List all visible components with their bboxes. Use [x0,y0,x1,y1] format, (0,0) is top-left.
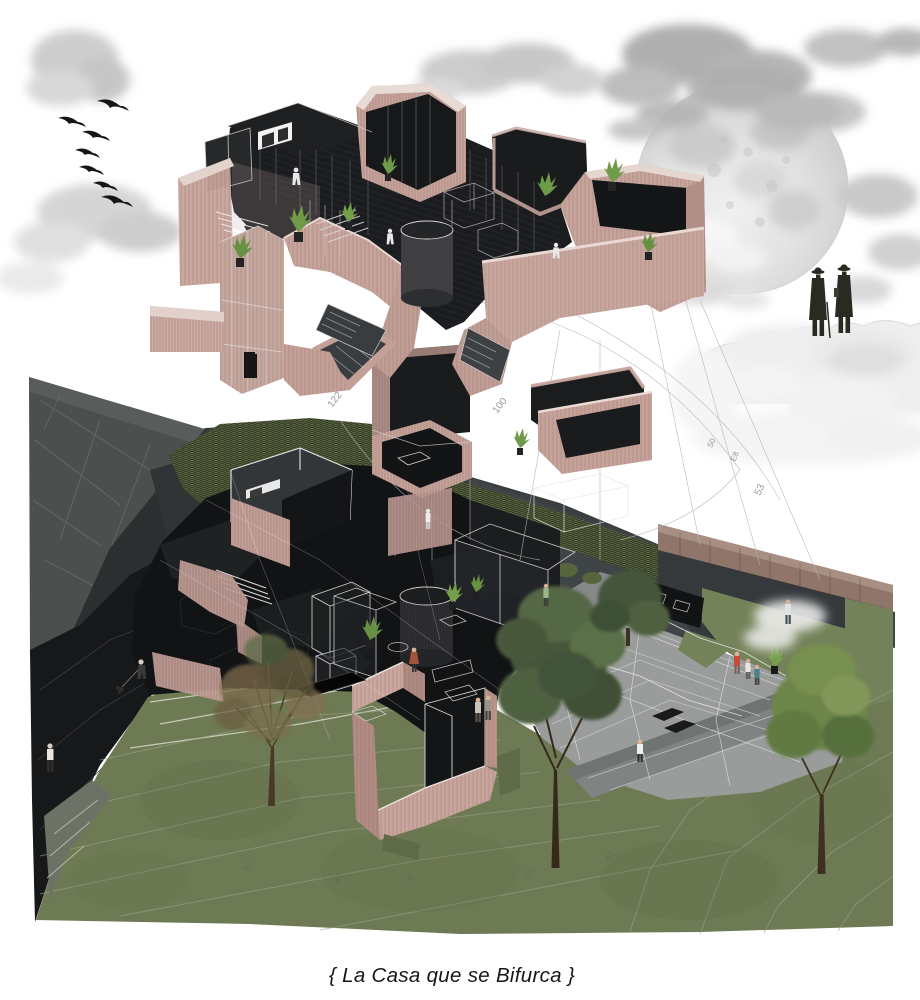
svg-text:{ La Casa que se Bifurca }: { La Casa que se Bifurca } [329,964,575,987]
